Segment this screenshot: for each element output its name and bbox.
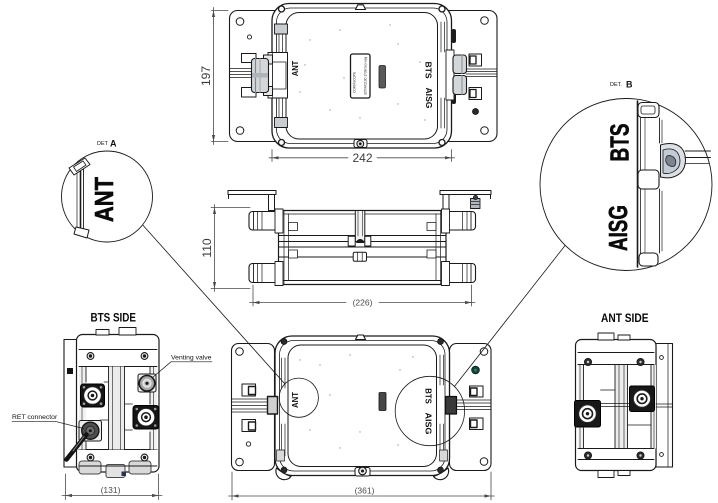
- svg-text:AISG: AISG: [424, 88, 433, 109]
- svg-text:AISG: AISG: [424, 413, 433, 435]
- svg-text:Venting valve: Venting valve: [171, 355, 212, 362]
- svg-text:B: B: [626, 80, 633, 90]
- svg-text:242: 242: [352, 151, 372, 165]
- svg-text:ANT: ANT: [291, 61, 300, 77]
- svg-text:BTS SIDE: BTS SIDE: [91, 313, 137, 325]
- svg-text:110: 110: [200, 238, 214, 257]
- svg-text:COMMSCOPE: COMMSCOPE: [353, 72, 357, 93]
- svg-text:DET: DET: [97, 141, 109, 147]
- svg-text:RET connector: RET connector: [12, 414, 58, 421]
- svg-text:AISG: AISG: [603, 205, 633, 251]
- svg-text:ANT SIDE: ANT SIDE: [601, 313, 649, 325]
- svg-text:ANT: ANT: [291, 392, 300, 408]
- svg-text:(361): (361): [355, 486, 375, 496]
- svg-text:(226): (226): [353, 298, 373, 308]
- svg-text:BTS: BTS: [424, 388, 433, 404]
- svg-text:(131): (131): [101, 485, 121, 495]
- svg-text:BTS: BTS: [605, 124, 635, 162]
- svg-text:BTS: BTS: [423, 62, 433, 79]
- svg-text:A: A: [110, 139, 117, 149]
- svg-text:ANT: ANT: [89, 177, 119, 222]
- svg-text:ddTMA2100 17dB two-way: ddTMA2100 17dB two-way: [364, 56, 368, 95]
- svg-text:197: 197: [199, 66, 213, 86]
- svg-text:DET.: DET.: [610, 82, 622, 88]
